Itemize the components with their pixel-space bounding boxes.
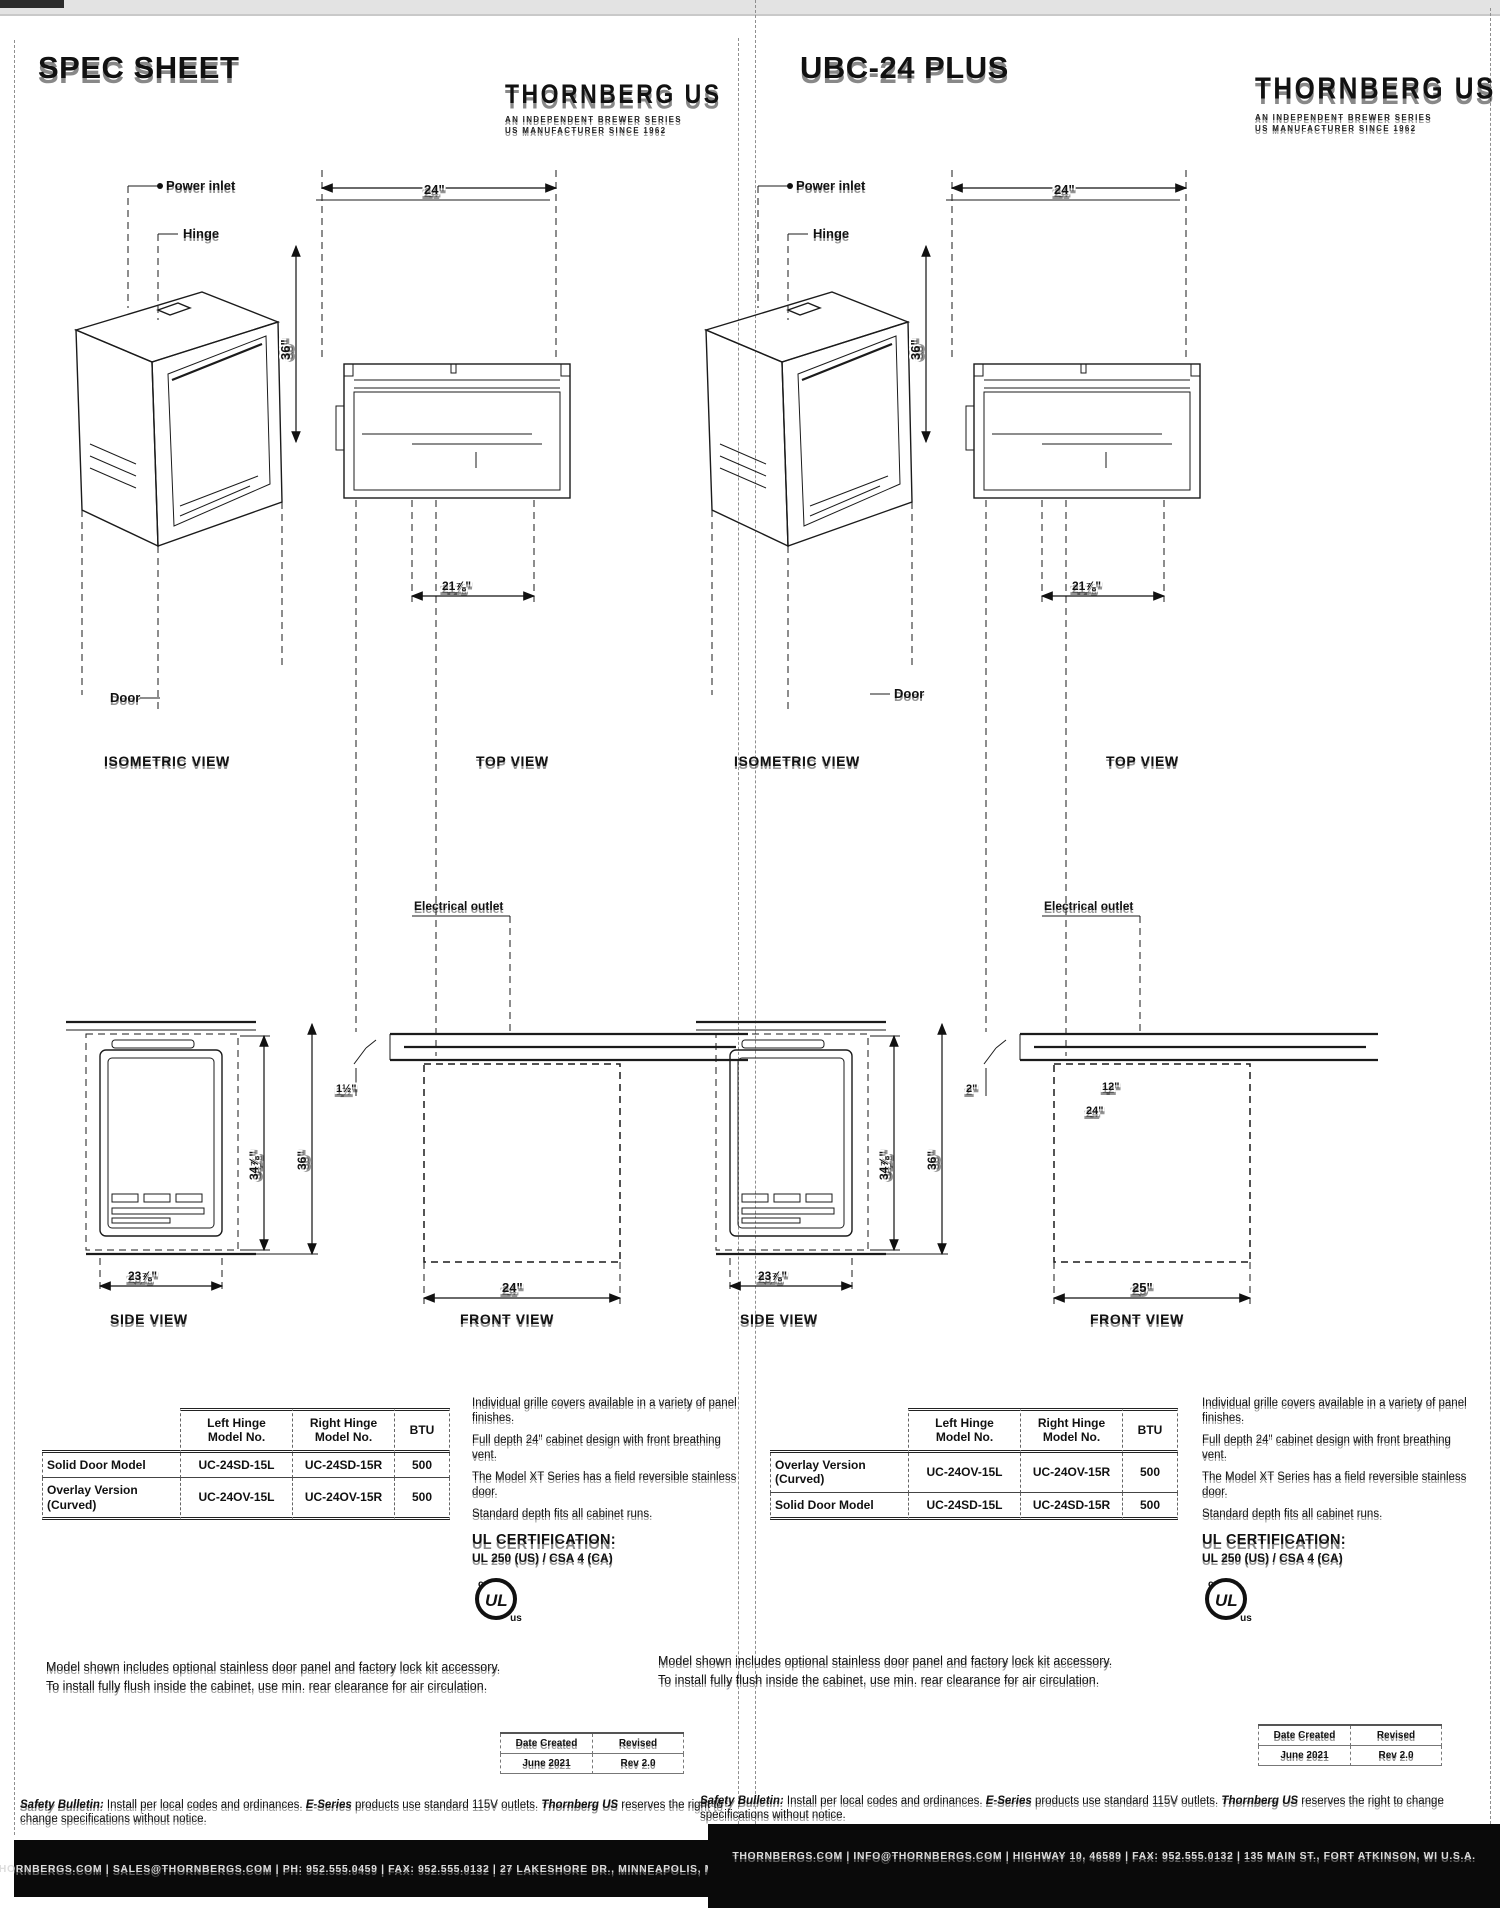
iso-callout-hinge: Hinge bbox=[813, 226, 849, 241]
footer-contact-text: THORNBERGS.COM | INFO@THORNBERGS.COM | H… bbox=[732, 1850, 1475, 1862]
brand-logo: THORNBERG US AN INDEPENDENT BREWER SERIE… bbox=[1248, 70, 1488, 133]
table-row-label: Solid Door Model bbox=[770, 1493, 908, 1520]
view-caption-top: TOP VIEW bbox=[1106, 753, 1179, 769]
front-view-outlet-label: Electrical outlet bbox=[1044, 899, 1133, 913]
table-cell-btu: 500 bbox=[1122, 1453, 1178, 1493]
side-view-drawing: 34⅞" 36" 23⅞" SIDE VIEW bbox=[696, 1022, 948, 1327]
safety-text: Install per local codes and ordinances. bbox=[784, 1795, 986, 1807]
safety-em: E-Series bbox=[986, 1795, 1032, 1807]
top-view-depth-dim: 36" bbox=[908, 339, 923, 360]
revision-value-created: June 2021 bbox=[1258, 1746, 1350, 1766]
table-header-right-hinge: Right Hinge Model No. bbox=[1020, 1408, 1122, 1453]
front-view-drawing: Electrical outlet 2" 12" 24" 25" FRONT V… bbox=[966, 899, 1378, 1327]
note-item: Standard depth fits all cabinet runs. bbox=[1202, 1507, 1470, 1522]
ul-listed-icon: UL us c bbox=[1202, 1573, 1256, 1635]
note-item: Individual grille covers available in a … bbox=[1202, 1396, 1470, 1426]
brand-tagline-1: AN INDEPENDENT BREWER SERIES bbox=[1255, 113, 1496, 122]
note-item: Full depth 24" cabinet design with front… bbox=[1202, 1433, 1470, 1463]
page-title: UBC-24 PLUS bbox=[800, 50, 1009, 86]
top-view-drawing: 24" 36" 21⅞" TOP VIEW bbox=[908, 170, 1200, 1056]
scanned-spec-sheet: SPEC SHEET THORNBERG US AN INDEPENDENT B… bbox=[0, 0, 1500, 1908]
table-cell-model: UC-24SD-15L bbox=[908, 1493, 1020, 1520]
certification-heading: UL CERTIFICATION: bbox=[1202, 1532, 1470, 1548]
top-view-width-dim: 24" bbox=[1054, 182, 1075, 197]
notes-block: Individual grille covers available in a … bbox=[1202, 1396, 1470, 1640]
safety-text-2: products use standard 115V outlets. bbox=[1032, 1795, 1222, 1807]
svg-text:c: c bbox=[1208, 1579, 1214, 1590]
front-view-extra-dim: 24" bbox=[1086, 1105, 1103, 1117]
paragraph-line-2: To install fully flush inside the cabine… bbox=[658, 1673, 1099, 1687]
top-view-bottom-dim: 21⅞" bbox=[1072, 579, 1101, 593]
iso-callout-power-inlet: Power inlet bbox=[796, 178, 866, 193]
isometric-view-drawing: Power inlet Hinge Door bbox=[706, 178, 924, 769]
safety-em-2: Thornberg US bbox=[1221, 1795, 1298, 1807]
view-caption-side: SIDE VIEW bbox=[740, 1311, 818, 1327]
paragraph-line-1: Model shown includes optional stainless … bbox=[658, 1654, 1112, 1668]
page-right: UBC-24 PLUS THORNBERG US AN INDEPENDENT … bbox=[0, 0, 1500, 1908]
front-view-recess-dim: 12" bbox=[1102, 1081, 1119, 1093]
technical-drawings: Power inlet Hinge Door bbox=[640, 150, 1380, 1370]
table-cell-btu: 500 bbox=[1122, 1493, 1178, 1520]
table-header-left-hinge: Left Hinge Model No. bbox=[908, 1408, 1020, 1453]
revision-value-revised: Rev 2.0 bbox=[1350, 1746, 1442, 1766]
table-cell-model: UC-24OV-15R bbox=[1020, 1453, 1122, 1493]
note-item: The Model XT Series has a field reversib… bbox=[1202, 1470, 1470, 1500]
svg-text:UL: UL bbox=[1215, 1591, 1238, 1610]
table-row-label: Overlay Version (Curved) bbox=[770, 1453, 908, 1493]
footer-contact-bar: THORNBERGS.COM | INFO@THORNBERGS.COM | H… bbox=[708, 1824, 1500, 1908]
front-view-counter-dim: 2" bbox=[966, 1083, 977, 1095]
models-table: Left Hinge Model No. Right Hinge Model N… bbox=[770, 1408, 1178, 1520]
notes-paragraph: Model shown includes optional stainless … bbox=[658, 1652, 1458, 1690]
revision-table: Date Created Revised June 2021 Rev 2.0 bbox=[1258, 1724, 1442, 1766]
revision-header-created: Date Created bbox=[1258, 1726, 1350, 1746]
side-view-inner-height-dim: 34⅞" bbox=[877, 1151, 891, 1180]
svg-text:us: us bbox=[1240, 1613, 1252, 1624]
safety-notice: Safety Bulletin: Install per local codes… bbox=[700, 1794, 1490, 1823]
table-header-btu: BTU bbox=[1122, 1408, 1178, 1453]
table-cell-model: UC-24SD-15R bbox=[1020, 1493, 1122, 1520]
table-cell-model: UC-24OV-15L bbox=[908, 1453, 1020, 1493]
brand-name: THORNBERG US bbox=[1255, 70, 1496, 107]
view-caption-isometric: ISOMETRIC VIEW bbox=[734, 753, 860, 769]
view-caption-front: FRONT VIEW bbox=[1090, 1311, 1184, 1327]
certification-standards: UL 250 (US) / CSA 4 (CA) bbox=[1202, 1551, 1470, 1565]
side-view-outer-height-dim: 36" bbox=[925, 1151, 939, 1170]
brand-tagline-2: US MANUFACTURER SINCE 1962 bbox=[1255, 124, 1496, 133]
front-view-width-dim: 25" bbox=[1132, 1280, 1153, 1295]
safety-lead: Safety Bulletin: bbox=[700, 1795, 784, 1807]
iso-callout-door: Door bbox=[894, 686, 924, 701]
side-view-width-dim: 23⅞" bbox=[758, 1269, 787, 1283]
table-corner-cell bbox=[770, 1408, 908, 1453]
revision-header-revised: Revised bbox=[1350, 1726, 1442, 1746]
